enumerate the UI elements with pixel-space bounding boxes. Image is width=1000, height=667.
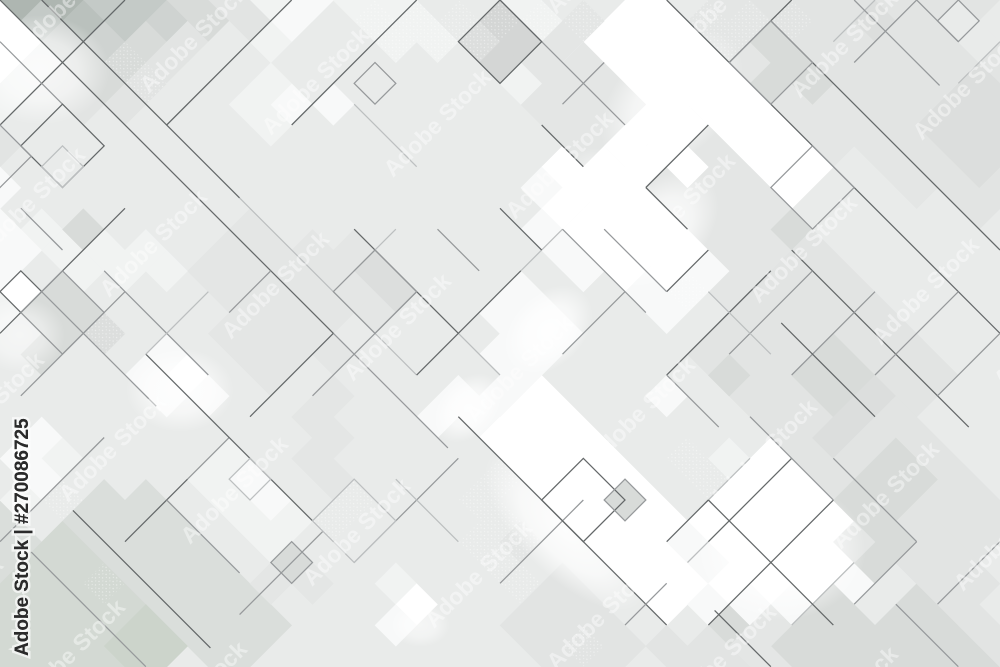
- svg-text:Adobe Stock | #270086725: Adobe Stock | #270086725: [12, 418, 33, 656]
